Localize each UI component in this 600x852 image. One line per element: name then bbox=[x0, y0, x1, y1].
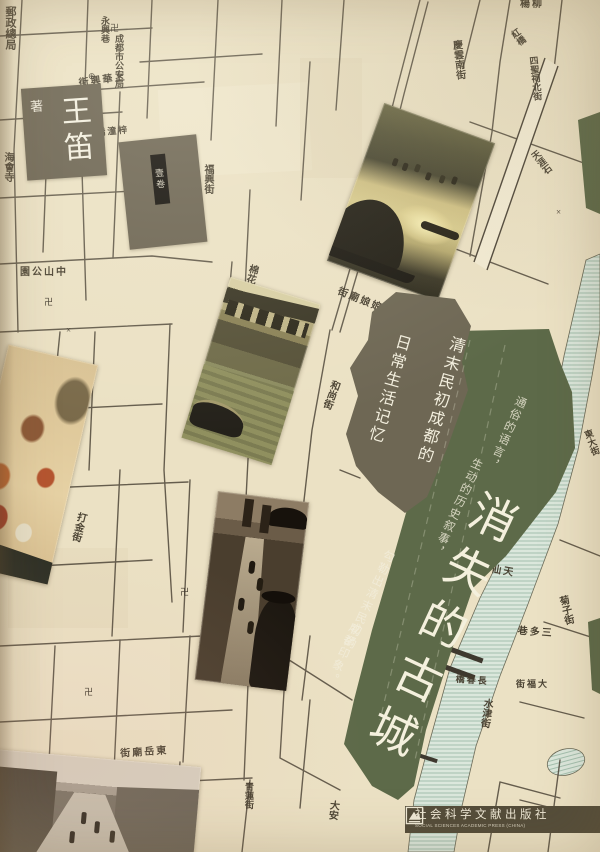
author-name: 王笛 bbox=[50, 94, 99, 169]
series-box: 壹卷 bbox=[119, 134, 208, 250]
author-role-label: 著 bbox=[29, 95, 43, 115]
book-cover: 郵政總局海會寺永興巷成都市公安局街興華上福興街街西橋潼梓園公山中棉花街江南館街北… bbox=[0, 0, 600, 852]
publisher-logo-icon bbox=[405, 806, 424, 825]
series-badge-label: 壹卷 bbox=[153, 168, 168, 191]
publisher-bar: 社会科学文献出版社 SOCIAL SCIENCES ACADEMIC PRESS… bbox=[405, 806, 600, 833]
series-badge: 壹卷 bbox=[150, 154, 170, 205]
publisher-name-en: SOCIAL SCIENCES ACADEMIC PRESS (CHINA) bbox=[415, 824, 525, 828]
green-sliver-right bbox=[588, 618, 600, 694]
green-wedge-top-right bbox=[578, 112, 600, 214]
publisher-name-cn: 社会科学文献出版社 bbox=[415, 809, 600, 822]
author-box: 著 王笛 bbox=[21, 83, 107, 180]
